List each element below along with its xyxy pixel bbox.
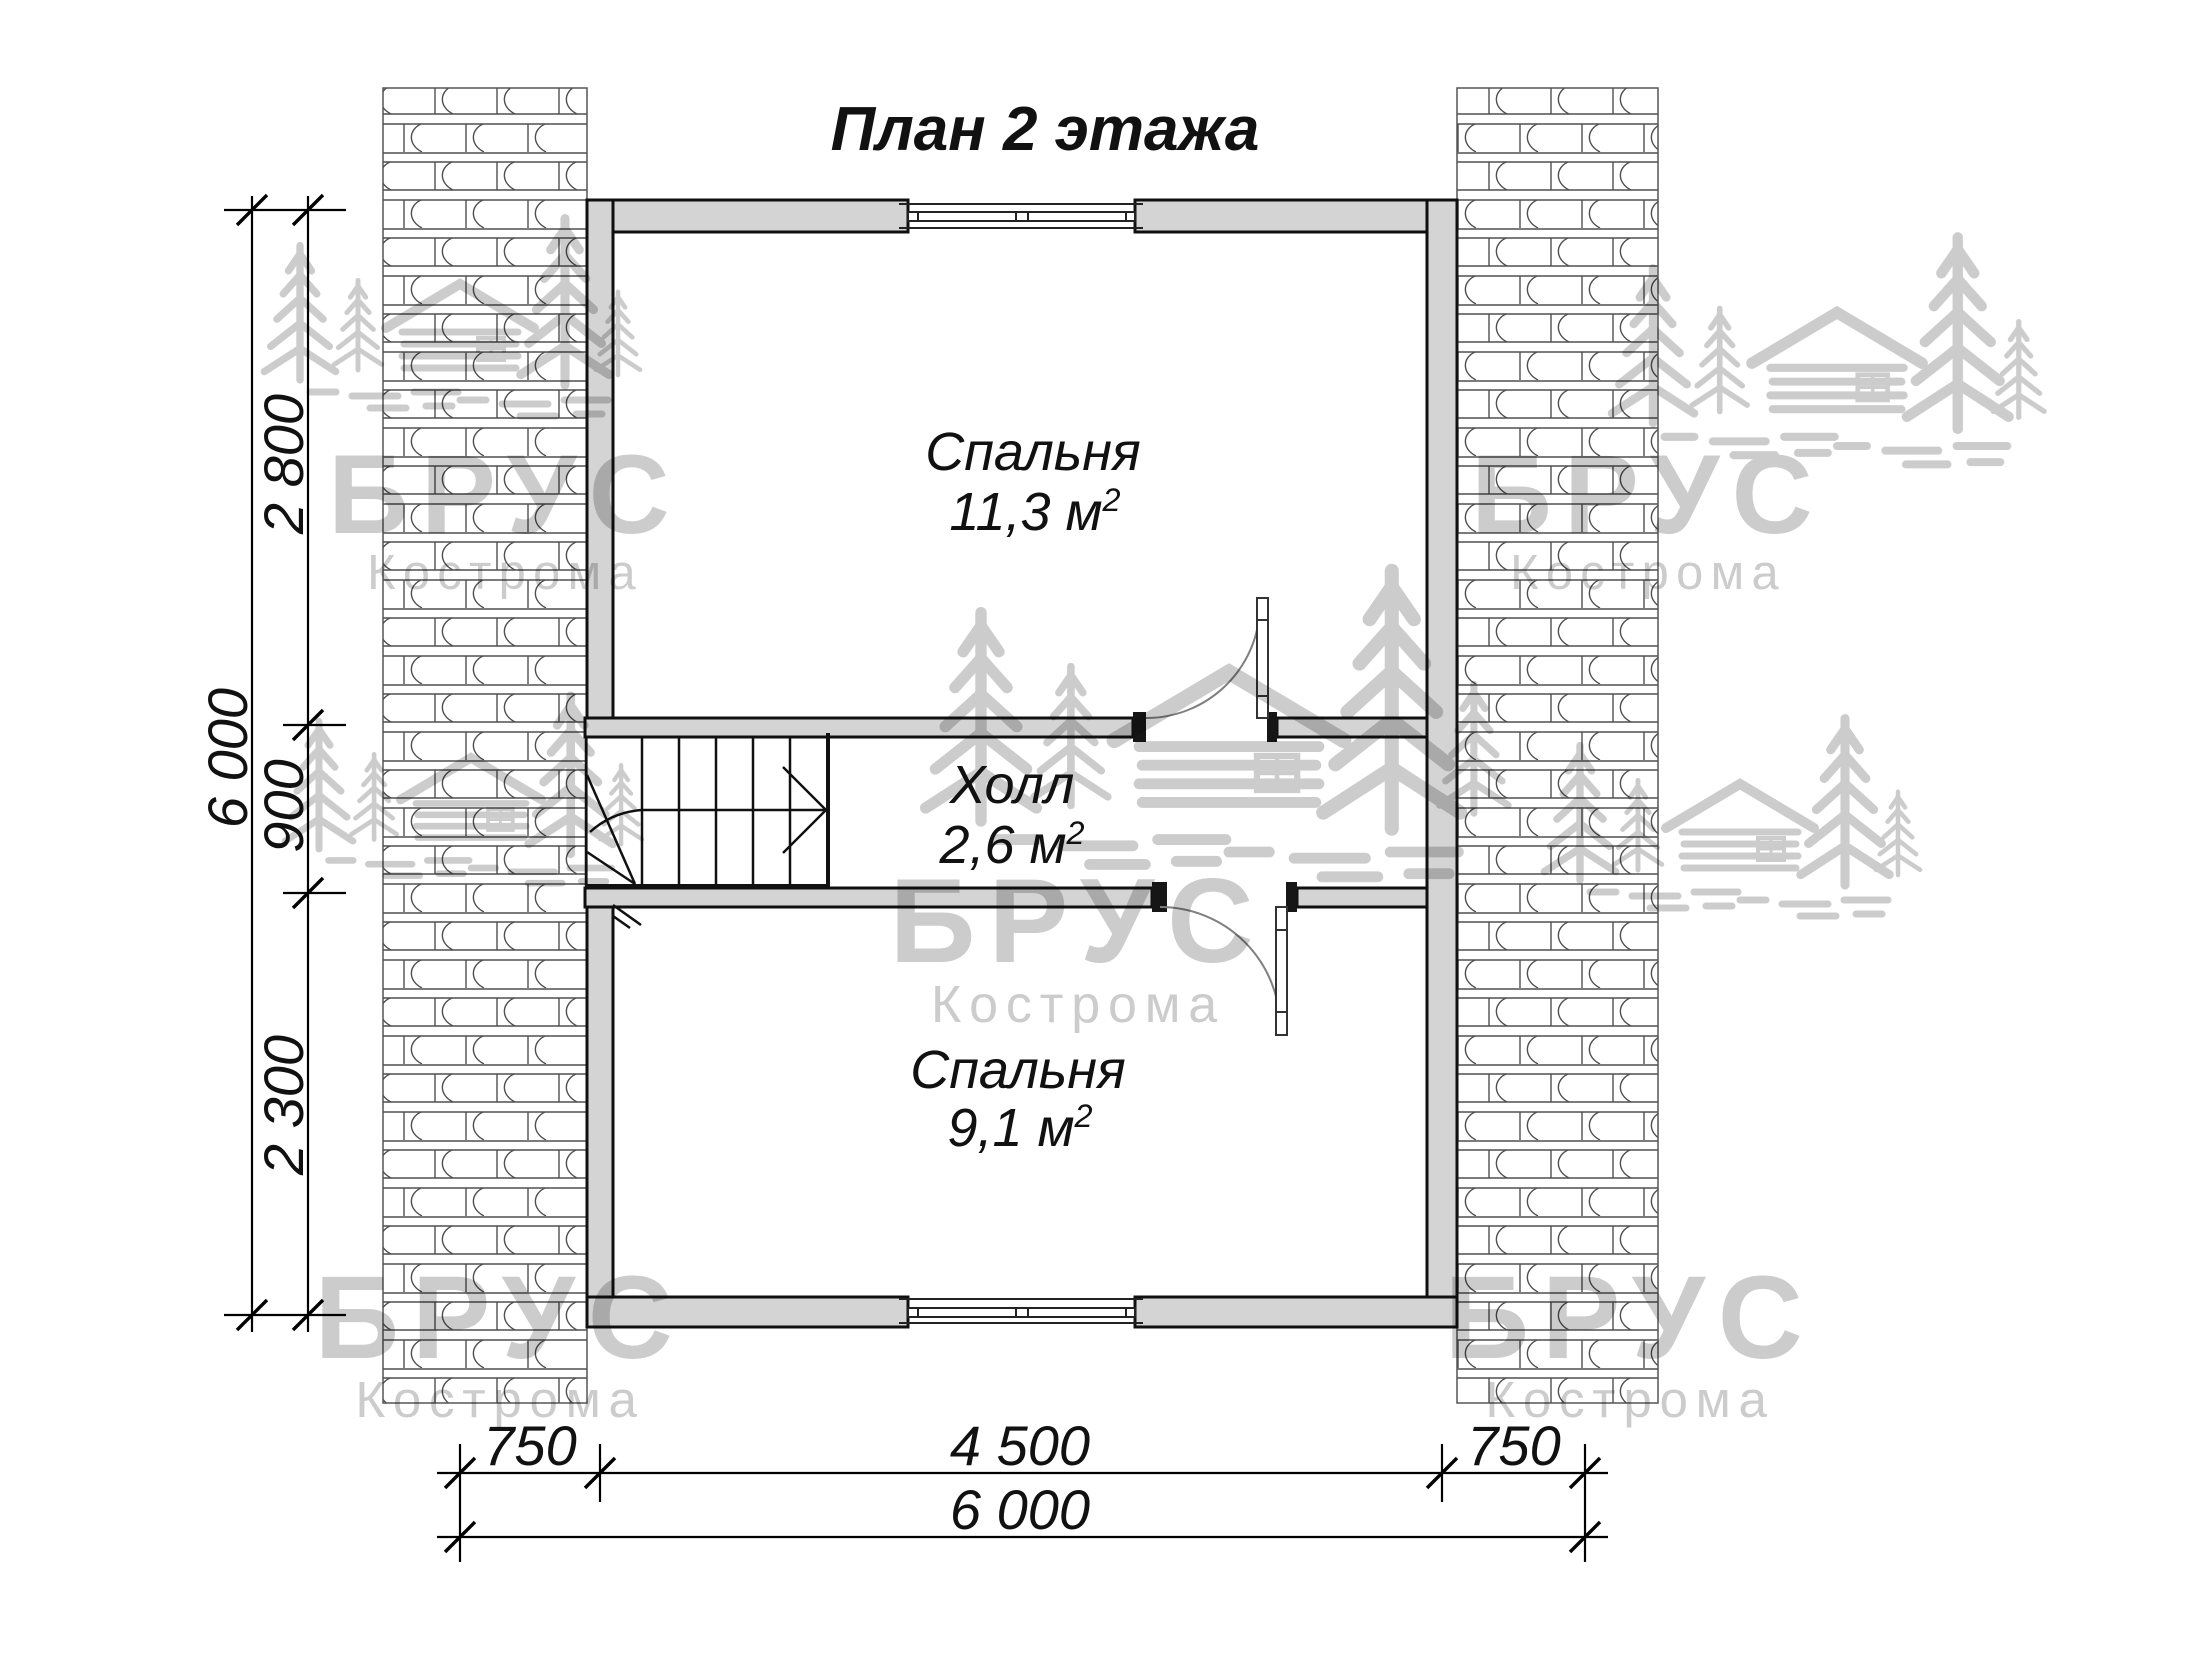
floor-plan-page: { "title": "План 2 этажа", "rooms": [ { … bbox=[0, 0, 2204, 1653]
wall-top-right-segment bbox=[1135, 200, 1457, 232]
room-area-bedroom-top: 11,3 м2 bbox=[949, 485, 1120, 539]
dim-bottom-750-right: 750 bbox=[1467, 1418, 1560, 1474]
room-area-bedroom-bottom: 9,1 м2 bbox=[947, 1101, 1092, 1155]
dim-left-2300: 2 300 bbox=[256, 1035, 312, 1175]
window-bottom bbox=[899, 1299, 1143, 1323]
door-top bbox=[1146, 598, 1268, 718]
wall-hall-bottom-right bbox=[1297, 888, 1427, 907]
floor-plan-canvas: БРУС Кострома bbox=[0, 0, 2204, 1653]
wall-top-left-segment bbox=[587, 200, 908, 232]
wall-bottom-right-segment bbox=[1135, 1297, 1457, 1327]
dim-bottom-4500: 4 500 bbox=[950, 1418, 1090, 1474]
room-name-hall: Холл bbox=[950, 758, 1075, 812]
window-top bbox=[899, 204, 1143, 228]
room-area-hall: 2,6 м2 bbox=[939, 818, 1084, 872]
room-name-bedroom-bottom: Спальня bbox=[910, 1043, 1126, 1097]
dim-bottom-total-6000: 6 000 bbox=[950, 1482, 1090, 1538]
page-title: План 2 этажа bbox=[831, 99, 1260, 161]
dim-bottom-750-left: 750 bbox=[483, 1418, 576, 1474]
dim-left-2800: 2 800 bbox=[256, 394, 312, 534]
room-name-bedroom-top: Спальня bbox=[925, 425, 1141, 479]
dim-left-total-6000: 6 000 bbox=[200, 688, 256, 828]
dim-left-900: 900 bbox=[256, 759, 312, 852]
